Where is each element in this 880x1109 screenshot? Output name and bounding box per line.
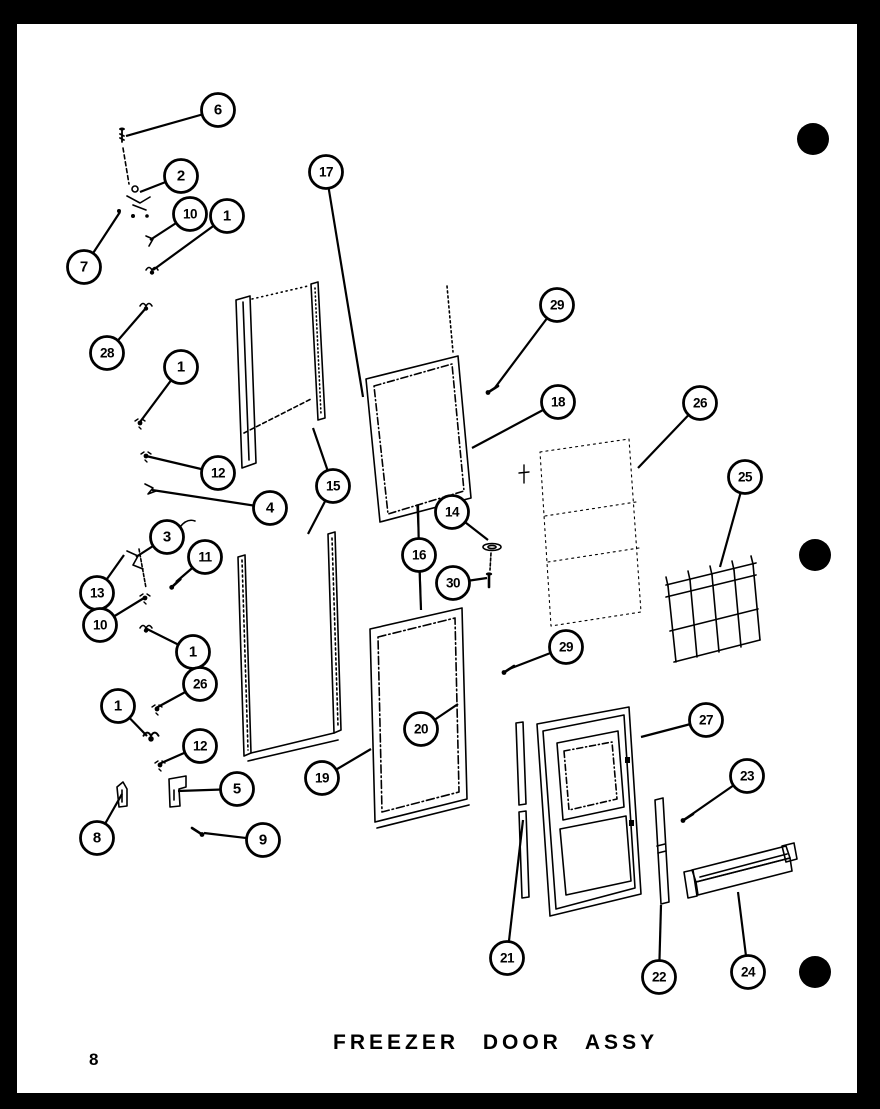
page-border-bottom (0, 1093, 880, 1109)
callout-8: 8 (81, 822, 114, 855)
svg-text:21: 21 (500, 951, 515, 966)
page-border-left (0, 0, 17, 1109)
outer-door-panel (366, 286, 471, 522)
callout-14: 14 (436, 496, 469, 529)
svg-text:25: 25 (738, 470, 753, 485)
svg-text:7: 7 (80, 259, 88, 276)
callout-1: 1 (102, 690, 135, 723)
svg-text:1: 1 (177, 359, 185, 376)
callout-29: 29 (541, 289, 574, 322)
svg-text:18: 18 (551, 395, 566, 410)
handle-trim (684, 843, 797, 898)
svg-text:6: 6 (214, 102, 222, 119)
scanned-page: 6210172817291826251124153111310126112589… (0, 0, 880, 1109)
callout-29: 29 (550, 631, 583, 664)
callout-23: 23 (731, 760, 764, 793)
binder-hole-dot (797, 123, 829, 155)
lower-breaker-frame (238, 532, 341, 761)
svg-text:9: 9 (259, 832, 267, 849)
svg-text:1: 1 (189, 644, 197, 661)
svg-text:22: 22 (652, 970, 666, 985)
svg-text:29: 29 (559, 640, 573, 655)
svg-text:3: 3 (163, 529, 171, 546)
callout-leader-line (507, 820, 523, 958)
callout-24: 24 (732, 956, 765, 989)
callout-12: 12 (184, 730, 217, 763)
page-border-right (857, 0, 880, 1109)
svg-text:15: 15 (326, 479, 341, 494)
callout-1: 1 (177, 636, 210, 669)
callout-9: 9 (247, 824, 280, 857)
callout-26: 26 (684, 387, 717, 420)
svg-text:13: 13 (90, 586, 105, 601)
page-border-top (0, 0, 880, 24)
callout-25: 25 (729, 461, 762, 494)
callout-1: 1 (165, 351, 198, 384)
svg-text:12: 12 (193, 739, 207, 754)
svg-text:19: 19 (315, 771, 329, 786)
callout-10: 10 (174, 198, 207, 231)
callout-leader-line (152, 490, 270, 508)
callout-27: 27 (690, 704, 723, 737)
callout-leader-line (326, 172, 363, 397)
svg-text:11: 11 (198, 550, 212, 565)
freezer-inner-door (537, 707, 641, 916)
svg-text:1: 1 (223, 208, 231, 225)
svg-text:14: 14 (445, 505, 460, 520)
figure-title: FREEZER DOOR ASSY (333, 1031, 658, 1055)
callout-26: 26 (184, 668, 217, 701)
lower-hinge-parts (117, 705, 204, 837)
svg-text:27: 27 (699, 713, 713, 728)
upper-breaker-strips (236, 282, 325, 468)
callout-16: 16 (403, 539, 436, 572)
callout-balloons: 6210172817291826251124153111310126112589… (68, 94, 765, 994)
svg-text:24: 24 (741, 965, 756, 980)
callout-1: 1 (211, 200, 244, 233)
callout-13: 13 (81, 577, 114, 610)
callout-30: 30 (437, 567, 470, 600)
svg-text:17: 17 (319, 165, 333, 180)
svg-text:23: 23 (740, 769, 755, 784)
svg-text:28: 28 (100, 346, 115, 361)
binder-hole-dot (799, 539, 831, 571)
callout-2: 2 (165, 160, 198, 193)
callout-3: 3 (151, 521, 184, 554)
callout-28: 28 (91, 337, 124, 370)
callout-10: 10 (84, 609, 117, 642)
top-hinge-parts (117, 128, 158, 311)
callout-18: 18 (542, 386, 575, 419)
svg-text:20: 20 (414, 722, 428, 737)
mounting-bar (655, 798, 669, 904)
shelf-retainer-rack (666, 556, 760, 662)
svg-text:29: 29 (550, 298, 564, 313)
binder-hole-dot (799, 956, 831, 988)
callout-6: 6 (202, 94, 235, 127)
callout-19: 19 (306, 762, 339, 795)
svg-text:30: 30 (446, 576, 460, 591)
svg-text:2: 2 (177, 168, 185, 185)
svg-text:26: 26 (193, 677, 208, 692)
callout-7: 7 (68, 251, 101, 284)
svg-text:5: 5 (233, 781, 241, 798)
exploded-parts-diagram: 6210172817291826251124153111310126112589… (0, 0, 880, 1109)
page-number: 8 (89, 1050, 98, 1070)
svg-text:12: 12 (211, 466, 225, 481)
svg-text:4: 4 (266, 500, 275, 517)
svg-text:10: 10 (93, 618, 107, 633)
callout-17: 17 (310, 156, 343, 189)
callout-11: 11 (189, 541, 222, 574)
svg-text:1: 1 (114, 698, 122, 715)
callout-12: 12 (202, 457, 235, 490)
callout-20: 20 (405, 713, 438, 746)
callout-4: 4 (254, 492, 287, 525)
callout-21: 21 (491, 942, 524, 975)
shelf-module-outline (519, 439, 641, 626)
svg-text:16: 16 (412, 548, 427, 563)
callout-5: 5 (221, 773, 254, 806)
callout-15: 15 (317, 470, 350, 503)
callout-22: 22 (643, 961, 676, 994)
svg-text:26: 26 (693, 396, 708, 411)
svg-text:10: 10 (183, 207, 197, 222)
svg-text:8: 8 (93, 830, 101, 847)
